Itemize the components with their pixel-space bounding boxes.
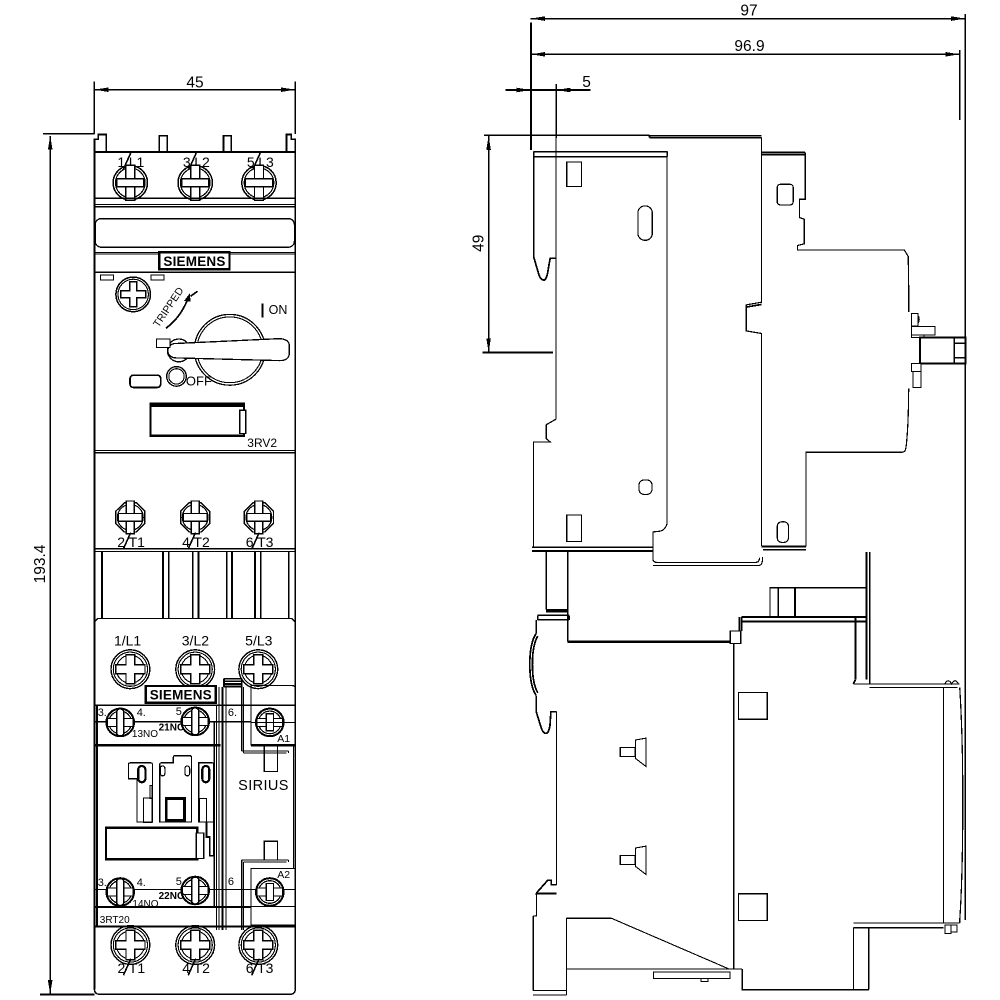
svg-text:SIEMENS: SIEMENS — [150, 687, 212, 702]
svg-text:4.: 4. — [137, 707, 146, 719]
svg-text:5/L3: 5/L3 — [245, 633, 272, 649]
svg-text:T1: T1 — [129, 534, 146, 550]
svg-text:21NC: 21NC — [159, 723, 185, 734]
svg-text:193.4: 193.4 — [32, 544, 49, 583]
svg-text:ON: ON — [269, 303, 288, 317]
svg-text:3/L2: 3/L2 — [182, 633, 209, 649]
svg-text:A1: A1 — [277, 733, 290, 745]
svg-text:6.: 6. — [228, 707, 237, 719]
svg-text:14NO: 14NO — [132, 899, 158, 910]
svg-text:96.9: 96.9 — [734, 38, 764, 55]
svg-text:13NO: 13NO — [132, 729, 158, 740]
svg-text:T2: T2 — [194, 960, 211, 976]
svg-text:SIEMENS: SIEMENS — [163, 254, 225, 269]
svg-text:4.: 4. — [137, 877, 146, 889]
svg-text:1/L1: 1/L1 — [114, 633, 141, 649]
svg-text:SIRIUS: SIRIUS — [238, 778, 289, 794]
svg-text:3RT20: 3RT20 — [100, 915, 130, 926]
svg-text:T1: T1 — [129, 960, 146, 976]
svg-text:6: 6 — [228, 876, 234, 888]
svg-text:T2: T2 — [193, 534, 210, 550]
svg-text:T3: T3 — [257, 960, 274, 976]
svg-text:45: 45 — [186, 75, 203, 92]
svg-text:3RV2: 3RV2 — [247, 436, 277, 450]
svg-text:49: 49 — [471, 235, 488, 252]
svg-text:T3: T3 — [257, 534, 274, 550]
svg-text:OFF: OFF — [186, 373, 212, 388]
svg-text:5: 5 — [176, 876, 182, 888]
svg-text:97: 97 — [740, 2, 757, 19]
svg-text:5: 5 — [582, 74, 591, 91]
svg-text:3.: 3. — [98, 877, 107, 889]
svg-text:22NC: 22NC — [159, 891, 185, 902]
svg-text:A2: A2 — [277, 869, 290, 881]
svg-text:5.: 5. — [176, 706, 185, 718]
svg-text:3.: 3. — [98, 707, 107, 719]
